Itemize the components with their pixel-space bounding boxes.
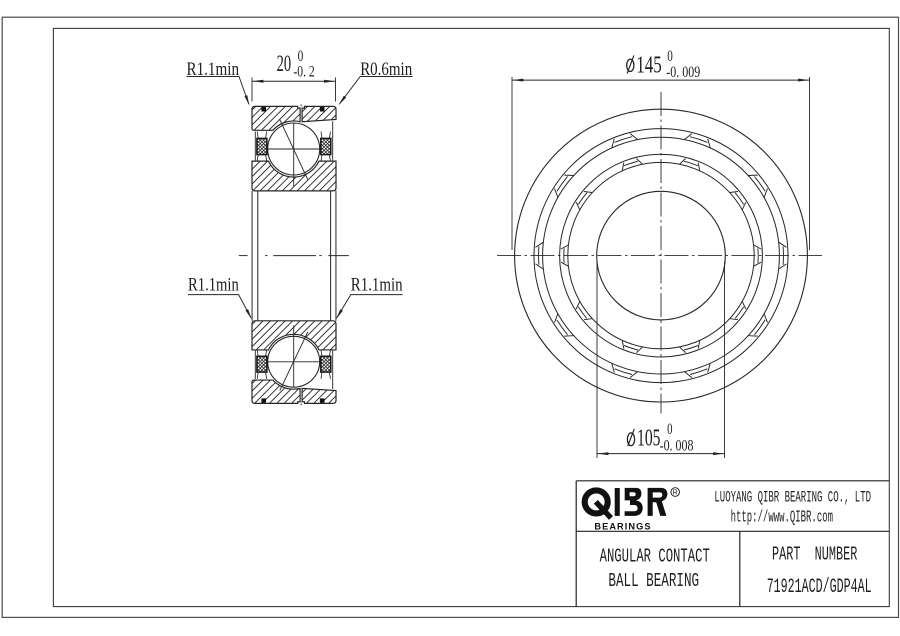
svg-text:145: 145 bbox=[636, 51, 662, 78]
svg-text:-0. 008: -0. 008 bbox=[660, 437, 694, 454]
svg-text:R: R bbox=[673, 490, 678, 497]
svg-text:R1.1min: R1.1min bbox=[187, 59, 240, 80]
svg-text:-0. 2: -0. 2 bbox=[293, 63, 314, 80]
svg-text:BEARINGS: BEARINGS bbox=[594, 522, 652, 532]
svg-text:R1.1min: R1.1min bbox=[351, 274, 403, 295]
svg-text:R1.1min: R1.1min bbox=[188, 274, 239, 295]
svg-text:LUOYANG QIBR BEARING CO., LTD: LUOYANG QIBR BEARING CO., LTD bbox=[714, 489, 871, 507]
svg-text:ANGULAR CONTACT: ANGULAR CONTACT bbox=[600, 545, 710, 567]
svg-text:-0. 009: -0. 009 bbox=[666, 64, 700, 81]
svg-text:105: 105 bbox=[637, 425, 661, 452]
svg-text:20: 20 bbox=[277, 51, 292, 77]
svg-text:http://www.QIBR.com: http://www.QIBR.com bbox=[731, 509, 833, 527]
svg-text:BALL BEARING: BALL BEARING bbox=[608, 570, 699, 592]
svg-text:0: 0 bbox=[667, 421, 672, 438]
svg-text:R0.6min: R0.6min bbox=[360, 59, 412, 80]
svg-text:0: 0 bbox=[667, 48, 673, 65]
svg-text:71921ACD/GDP4AL: 71921ACD/GDP4AL bbox=[767, 576, 872, 599]
svg-text:PART NUMBER: PART NUMBER bbox=[772, 544, 857, 566]
